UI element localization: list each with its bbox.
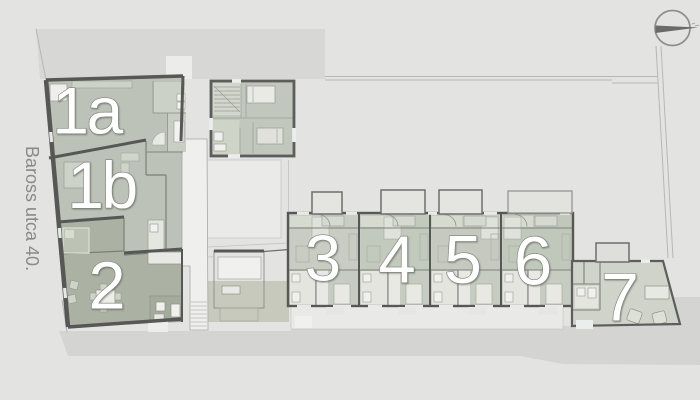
svg-text:1a: 1a [52,74,123,148]
svg-text:5: 5 [444,222,482,298]
svg-text:Baross utca 40.: Baross utca 40. [22,146,42,271]
svg-text:4: 4 [378,223,415,298]
svg-text:1b: 1b [67,148,135,222]
svg-text:6: 6 [514,223,552,300]
svg-text:7: 7 [601,260,639,336]
svg-text:2: 2 [88,249,125,324]
svg-text:3: 3 [305,222,341,295]
